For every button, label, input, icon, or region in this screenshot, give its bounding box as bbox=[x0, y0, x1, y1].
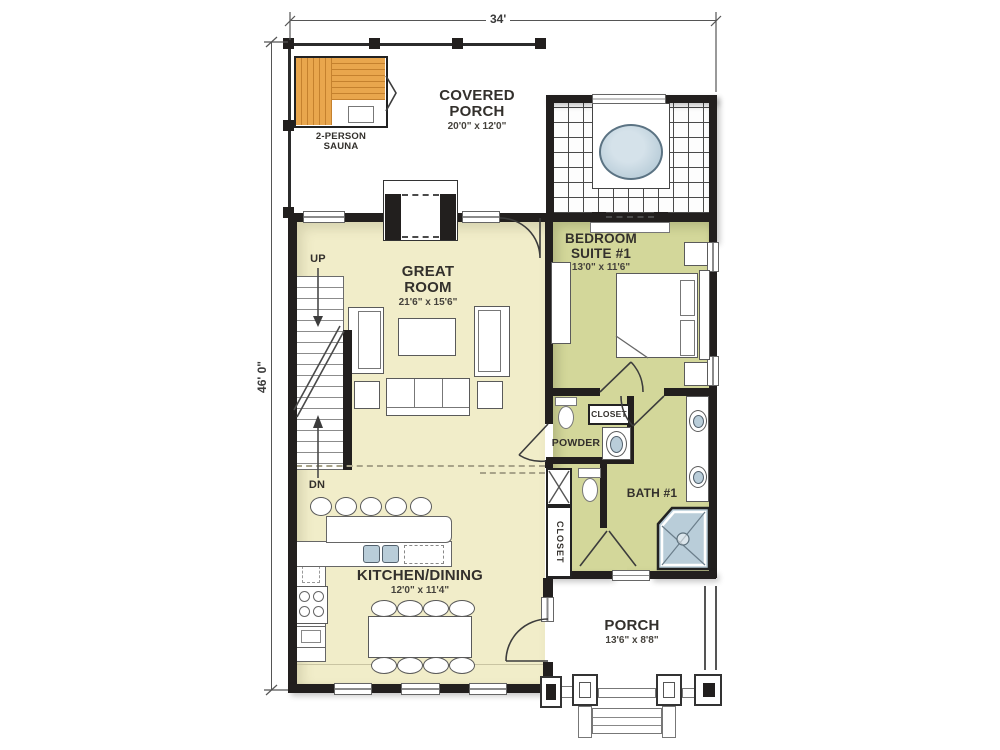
kitchen-dining-name: KITCHEN/DINING bbox=[340, 568, 500, 584]
great-room-name: GREAT ROOM bbox=[378, 264, 478, 296]
dimension-width-label: 34' bbox=[486, 12, 510, 26]
porch-post bbox=[283, 38, 294, 49]
bedroom-window bbox=[707, 242, 719, 272]
porch-column bbox=[656, 674, 682, 706]
porch-step-line bbox=[593, 717, 661, 718]
nightstand bbox=[684, 362, 708, 386]
covered-porch-size: 20'0" x 12'0" bbox=[427, 122, 527, 133]
burner bbox=[299, 591, 310, 602]
end-table bbox=[477, 381, 503, 409]
bar-stool bbox=[335, 497, 357, 516]
floor-plan: 34' 46' 0" bbox=[0, 0, 1000, 750]
porch-corner-column bbox=[694, 674, 722, 706]
porch-step-pier bbox=[662, 706, 676, 738]
porch-post bbox=[369, 38, 380, 49]
burner bbox=[299, 606, 310, 617]
kitchen-porch-wall bbox=[543, 578, 553, 598]
oven-inner bbox=[301, 630, 321, 643]
powder-toilet-bowl bbox=[558, 406, 574, 429]
hot-tub bbox=[599, 124, 663, 180]
stairs-down-label: DN bbox=[304, 480, 330, 492]
powder-toilet-tank bbox=[555, 397, 577, 406]
dining-chair bbox=[371, 600, 397, 617]
kitchen-window bbox=[401, 683, 440, 695]
entry-closet: CLOSET bbox=[546, 506, 572, 578]
dresser bbox=[551, 262, 571, 344]
bath-window bbox=[612, 570, 650, 581]
kitchen-sink bbox=[363, 545, 380, 563]
sauna-name: 2-PERSON SAUNA bbox=[302, 132, 380, 153]
bar-stool bbox=[310, 497, 332, 516]
dim-tick bbox=[285, 16, 295, 26]
porch-railing-right bbox=[704, 586, 717, 670]
sofa-back-line bbox=[387, 407, 469, 408]
deck-wall-left bbox=[546, 95, 554, 213]
sofa bbox=[386, 378, 470, 416]
burner bbox=[313, 606, 324, 617]
porch-post bbox=[283, 120, 294, 131]
greatroom-window bbox=[462, 211, 500, 223]
porch-post bbox=[535, 38, 546, 49]
porch-step-line bbox=[593, 725, 661, 726]
entry-closet-label: CLOSET bbox=[554, 521, 564, 564]
staircase bbox=[296, 276, 344, 470]
sofa-cushion-line bbox=[414, 379, 415, 407]
porch-name: PORCH bbox=[580, 618, 684, 634]
stairs-up-label: UP bbox=[306, 254, 330, 266]
sauna-heater bbox=[348, 106, 374, 123]
kitchen-dining-size: 12'0" x 11'4" bbox=[340, 586, 500, 597]
armchair-cushion bbox=[358, 311, 381, 369]
porch-edge-top bbox=[288, 43, 546, 46]
covered-porch-label: COVERED PORCH 20'0" x 12'0" bbox=[427, 88, 527, 133]
fireplace-pier bbox=[440, 194, 456, 240]
bedroom-suite-label: BEDROOM SUITE #1 13'0" x 11'6" bbox=[550, 232, 652, 274]
armchair bbox=[474, 306, 510, 377]
porch-step-pier bbox=[578, 706, 592, 738]
bath-sink-basin bbox=[693, 471, 704, 484]
dim-tick bbox=[711, 16, 721, 26]
wall-right bbox=[709, 272, 717, 356]
porch-pier-house bbox=[540, 676, 562, 708]
porch-steps bbox=[592, 708, 662, 734]
porch-label: PORCH 13'6" x 8'8" bbox=[580, 618, 684, 647]
kitchen-island bbox=[326, 516, 452, 543]
mechanical-chase bbox=[546, 468, 572, 506]
bath-sink-basin bbox=[693, 415, 704, 428]
range bbox=[294, 586, 328, 624]
dining-chair bbox=[423, 600, 449, 617]
porch-size: 13'6" x 8'8" bbox=[580, 636, 684, 647]
porch-column-inner bbox=[579, 682, 591, 698]
dining-chair bbox=[397, 600, 423, 617]
dining-table bbox=[368, 616, 472, 658]
great-room-size: 21'6" x 15'6" bbox=[378, 298, 478, 309]
bedroom-wall-bottom bbox=[546, 388, 600, 396]
bed-pillow bbox=[680, 320, 695, 356]
armchair bbox=[348, 307, 384, 374]
powder-sink-basin bbox=[610, 436, 623, 453]
dining-chair bbox=[371, 657, 397, 674]
fireplace-pier bbox=[385, 194, 401, 240]
kitchen-sink bbox=[382, 545, 399, 563]
hall-closet-label: CLOSET bbox=[591, 410, 627, 419]
greatroom-window bbox=[303, 211, 345, 223]
kitchen-dining-label: KITCHEN/DINING 12'0" x 11'4" bbox=[340, 568, 500, 597]
bar-stool bbox=[385, 497, 407, 516]
porch-pier-core bbox=[546, 684, 556, 700]
hall-closet: CLOSET bbox=[588, 404, 630, 425]
slider-opening bbox=[606, 216, 654, 218]
deck-gate-window bbox=[592, 94, 666, 104]
bedroom-wall-bottom bbox=[664, 388, 716, 396]
sauna-bench-top bbox=[332, 58, 385, 100]
nightstand bbox=[684, 242, 708, 266]
sofa-cushion-line bbox=[442, 379, 443, 407]
porch-post bbox=[452, 38, 463, 49]
room-separator bbox=[480, 472, 545, 474]
coffee-table bbox=[398, 318, 456, 356]
great-room-label: GREAT ROOM 21'6" x 15'6" bbox=[378, 264, 478, 309]
dishwasher bbox=[404, 545, 444, 564]
bath-toilet-bowl bbox=[582, 478, 598, 502]
porch-column-inner bbox=[663, 682, 675, 698]
bedroom-suite-size: 13'0" x 11'6" bbox=[550, 263, 652, 274]
dining-chair bbox=[397, 657, 423, 674]
dining-chair bbox=[449, 657, 475, 674]
fireplace-opening bbox=[402, 194, 439, 196]
dimension-line-left bbox=[271, 42, 272, 690]
porch-column bbox=[572, 674, 598, 706]
kitchen-window bbox=[469, 683, 507, 695]
powder-label: POWDER bbox=[548, 438, 604, 449]
bedroom-suite-name: BEDROOM SUITE #1 bbox=[550, 232, 652, 261]
bedroom-window bbox=[707, 356, 719, 386]
bath-wall-bottom bbox=[650, 571, 716, 579]
powder-name: POWDER bbox=[548, 438, 604, 449]
dimension-height-label: 46' 0" bbox=[255, 357, 269, 397]
bath-label: BATH #1 bbox=[602, 487, 702, 500]
entry-window bbox=[541, 597, 554, 622]
room-separator bbox=[296, 465, 545, 467]
porch-corner-core bbox=[703, 683, 715, 697]
sauna bbox=[294, 56, 388, 128]
burner bbox=[313, 591, 324, 602]
bed-pillow bbox=[680, 280, 695, 316]
bath-toilet-tank bbox=[578, 468, 601, 478]
sauna-label: 2-PERSON SAUNA bbox=[302, 132, 380, 153]
porch-rail bbox=[598, 688, 656, 698]
covered-porch-name: COVERED PORCH bbox=[427, 88, 527, 120]
sauna-bench-left bbox=[296, 58, 332, 125]
dining-chair bbox=[449, 600, 475, 617]
wall-right bbox=[709, 386, 717, 578]
bath-name: BATH #1 bbox=[602, 487, 702, 500]
kitchen-window bbox=[334, 683, 372, 695]
bed-headboard bbox=[699, 270, 710, 360]
stair-wall bbox=[343, 330, 352, 470]
oven-cabinet bbox=[296, 626, 326, 648]
end-table bbox=[354, 381, 380, 409]
bar-stool bbox=[410, 497, 432, 516]
armchair-cushion bbox=[478, 310, 501, 372]
bar-stool bbox=[360, 497, 382, 516]
dining-chair bbox=[423, 657, 449, 674]
fireplace-opening bbox=[402, 236, 439, 238]
wall-left bbox=[288, 213, 297, 693]
